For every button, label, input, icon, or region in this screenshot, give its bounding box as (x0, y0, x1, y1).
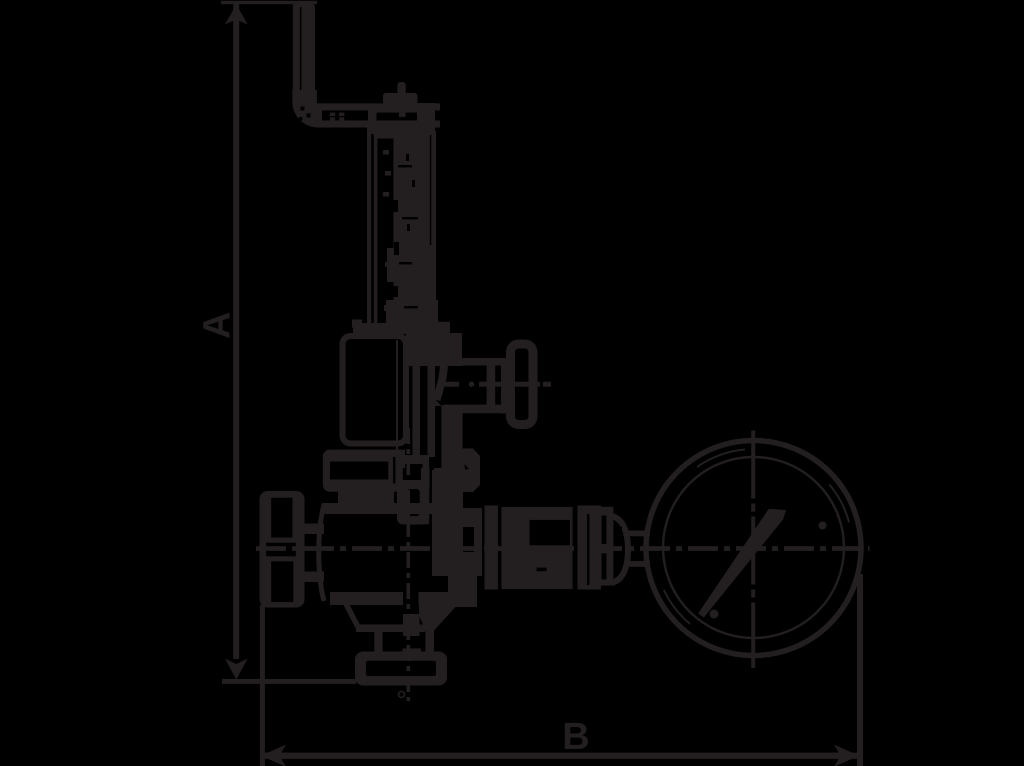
svg-text:A: A (197, 312, 239, 339)
svg-text:B: B (562, 716, 589, 758)
